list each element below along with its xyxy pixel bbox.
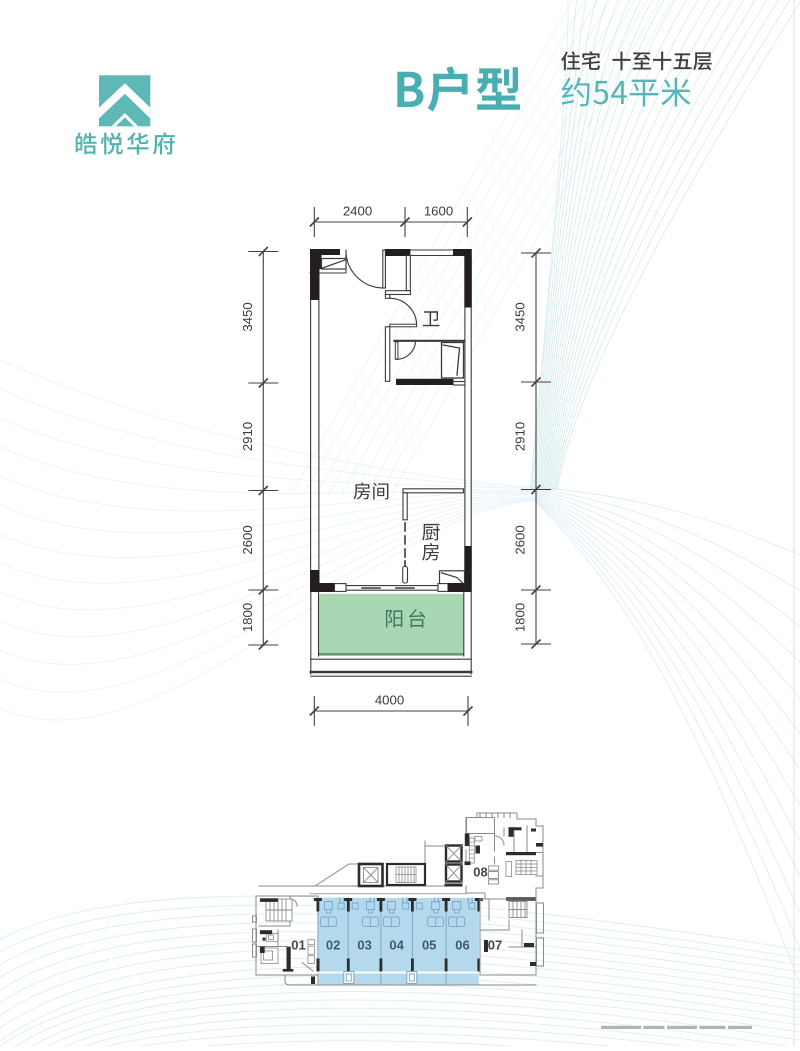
svg-text:2910: 2910 — [240, 422, 255, 451]
svg-text:05: 05 — [422, 938, 436, 953]
svg-text:04: 04 — [389, 938, 404, 953]
svg-text:1800: 1800 — [240, 603, 255, 632]
svg-text:3450: 3450 — [513, 302, 528, 331]
svg-text:3450: 3450 — [240, 302, 255, 331]
svg-text:01: 01 — [291, 938, 305, 953]
svg-text:1800: 1800 — [513, 603, 528, 632]
svg-text:2600: 2600 — [240, 525, 255, 554]
svg-text:03: 03 — [357, 938, 371, 953]
svg-text:2400: 2400 — [343, 204, 372, 219]
svg-text:07: 07 — [488, 938, 502, 953]
svg-text:2910: 2910 — [513, 422, 528, 451]
svg-text:2600: 2600 — [513, 525, 528, 554]
svg-text:4000: 4000 — [375, 693, 404, 708]
svg-text:1600: 1600 — [424, 204, 453, 219]
svg-text:02: 02 — [326, 938, 340, 953]
svg-text:08: 08 — [473, 865, 487, 880]
svg-text:06: 06 — [455, 938, 469, 953]
